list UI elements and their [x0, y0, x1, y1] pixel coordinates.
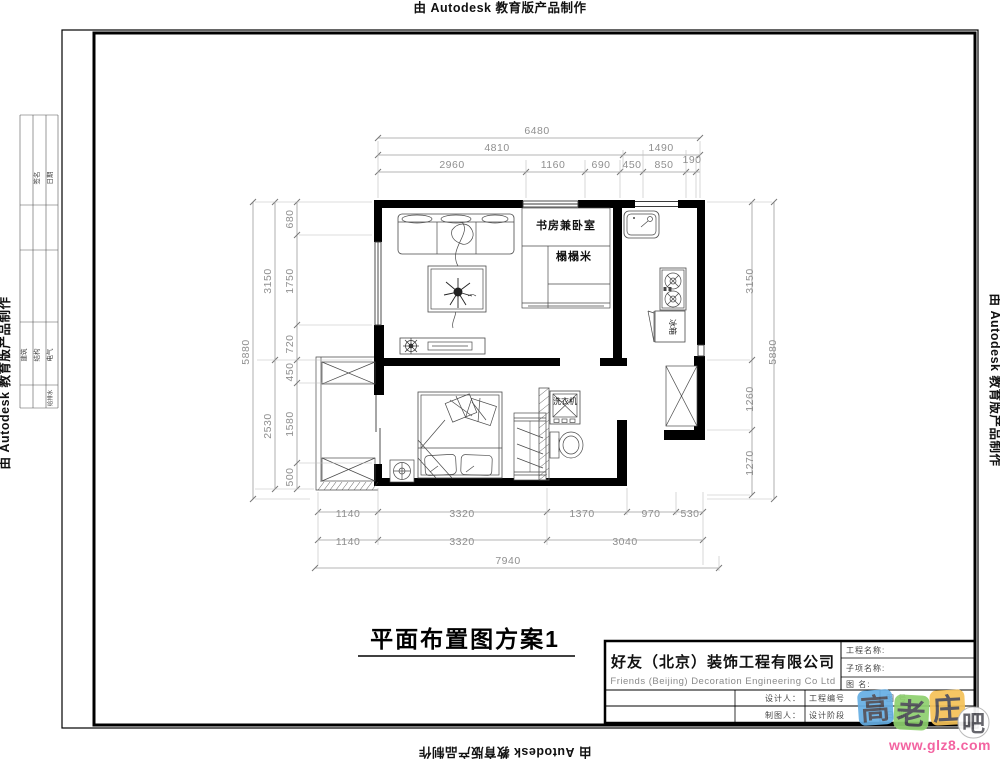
watermark-char: 老: [896, 697, 927, 731]
dim-label: 3040: [612, 536, 637, 548]
company-name-en: Friends (Beijing) Decoration Engineering…: [610, 676, 835, 687]
field-project-no: 工程编号: [809, 693, 845, 703]
room-label-tatami: 榻榻米: [556, 249, 592, 263]
edu-banner-top: 由 Autodesk 教育版产品制作: [414, 0, 587, 15]
room-label-washer: 洗衣机: [553, 396, 577, 406]
dim-label: 2960: [439, 159, 464, 171]
bed: [418, 392, 502, 478]
coffee-table: [428, 266, 486, 312]
field-drawing-name: 图 名:: [846, 679, 870, 689]
tall-cabinet: [666, 366, 697, 426]
watermark-url: www.glz8.com: [888, 737, 991, 753]
dim-label: 7940: [495, 555, 520, 567]
watermark-char: 吧: [962, 710, 985, 736]
bedside-stool: [390, 460, 414, 482]
dim-label: 3150: [744, 268, 756, 293]
dim-label: 1270: [744, 450, 756, 475]
wardrobe: [514, 413, 546, 480]
dim-label: 850: [654, 159, 673, 171]
dim-label: 1750: [284, 268, 296, 293]
signoff-discipline: 给排水: [46, 389, 54, 406]
tv-cabinet: [400, 338, 485, 354]
dim-label: 1140: [336, 508, 361, 520]
toilet: [550, 432, 583, 458]
drawing-title-block: 平面布置图方案1: [358, 626, 575, 656]
dim-label: 720: [284, 334, 296, 353]
dim-label: 2530: [262, 413, 274, 438]
dim-label: 5880: [767, 339, 779, 364]
floor-plan-sheet: 由 Autodesk 教育版产品制作 由 Autodesk 教育版产品制作 由 …: [0, 0, 1000, 759]
watermark-char: 高: [860, 692, 891, 727]
dim-label: 970: [641, 508, 660, 520]
dim-label: 1580: [284, 411, 296, 436]
signoff-strip: 签名 日期 建筑 结构 电气 给排水: [19, 115, 58, 408]
dim-label: 4810: [484, 142, 509, 154]
plant-small: [403, 338, 419, 354]
company-name-cn: 好友（北京）装饰工程有限公司: [610, 653, 835, 671]
dim-label: 3320: [449, 508, 474, 520]
edu-banner-left: 由 Autodesk 教育版产品制作: [0, 297, 12, 470]
field-subitem-name: 子项名称:: [846, 663, 885, 673]
dim-label: 1370: [569, 508, 594, 520]
dim-label: 1140: [336, 536, 361, 548]
field-drafter: 制图人：: [765, 710, 801, 720]
washing-machine: 洗衣机: [550, 391, 580, 424]
dim-label: 190: [682, 154, 701, 166]
field-designer: 设计人：: [765, 693, 801, 703]
sheet-frame: [62, 30, 978, 728]
dim-label: 1490: [648, 142, 673, 154]
room-label-fridge: 冰箱: [668, 319, 678, 335]
dim-label: 690: [591, 159, 610, 171]
kitchen-sink: [624, 211, 659, 238]
dim-label: 530: [680, 508, 699, 520]
dim-label: 3150: [262, 268, 274, 293]
field-stage: 设计阶段: [809, 710, 845, 720]
signoff-discipline: 结构: [32, 348, 41, 362]
dim-label: 450: [284, 362, 296, 381]
dim-label: 680: [284, 209, 296, 228]
signoff-discipline: 建筑: [19, 348, 28, 362]
field-project-name: 工程名称:: [846, 645, 885, 655]
signoff-top-label: 签名: [32, 172, 41, 185]
drawing-title: 平面布置图方案1: [370, 626, 560, 652]
room-label-study-bedroom: 书房兼卧室: [536, 218, 596, 232]
dim-label: 450: [622, 159, 641, 171]
dim-label: 5880: [240, 339, 252, 364]
dim-label: 1160: [541, 159, 566, 171]
signoff-top-label: 日期: [46, 171, 54, 185]
signoff-discipline: 电气: [45, 348, 54, 362]
edu-banner-right: 由 Autodesk 教育版产品制作: [988, 294, 1000, 467]
edu-banner-bottom: 由 Autodesk 教育版产品制作: [419, 745, 592, 759]
dim-label: 6480: [524, 125, 549, 137]
dim-label: 3320: [449, 536, 474, 548]
dim-label: 500: [284, 467, 296, 486]
dim-label: 1260: [744, 386, 756, 411]
stove: [660, 268, 686, 310]
